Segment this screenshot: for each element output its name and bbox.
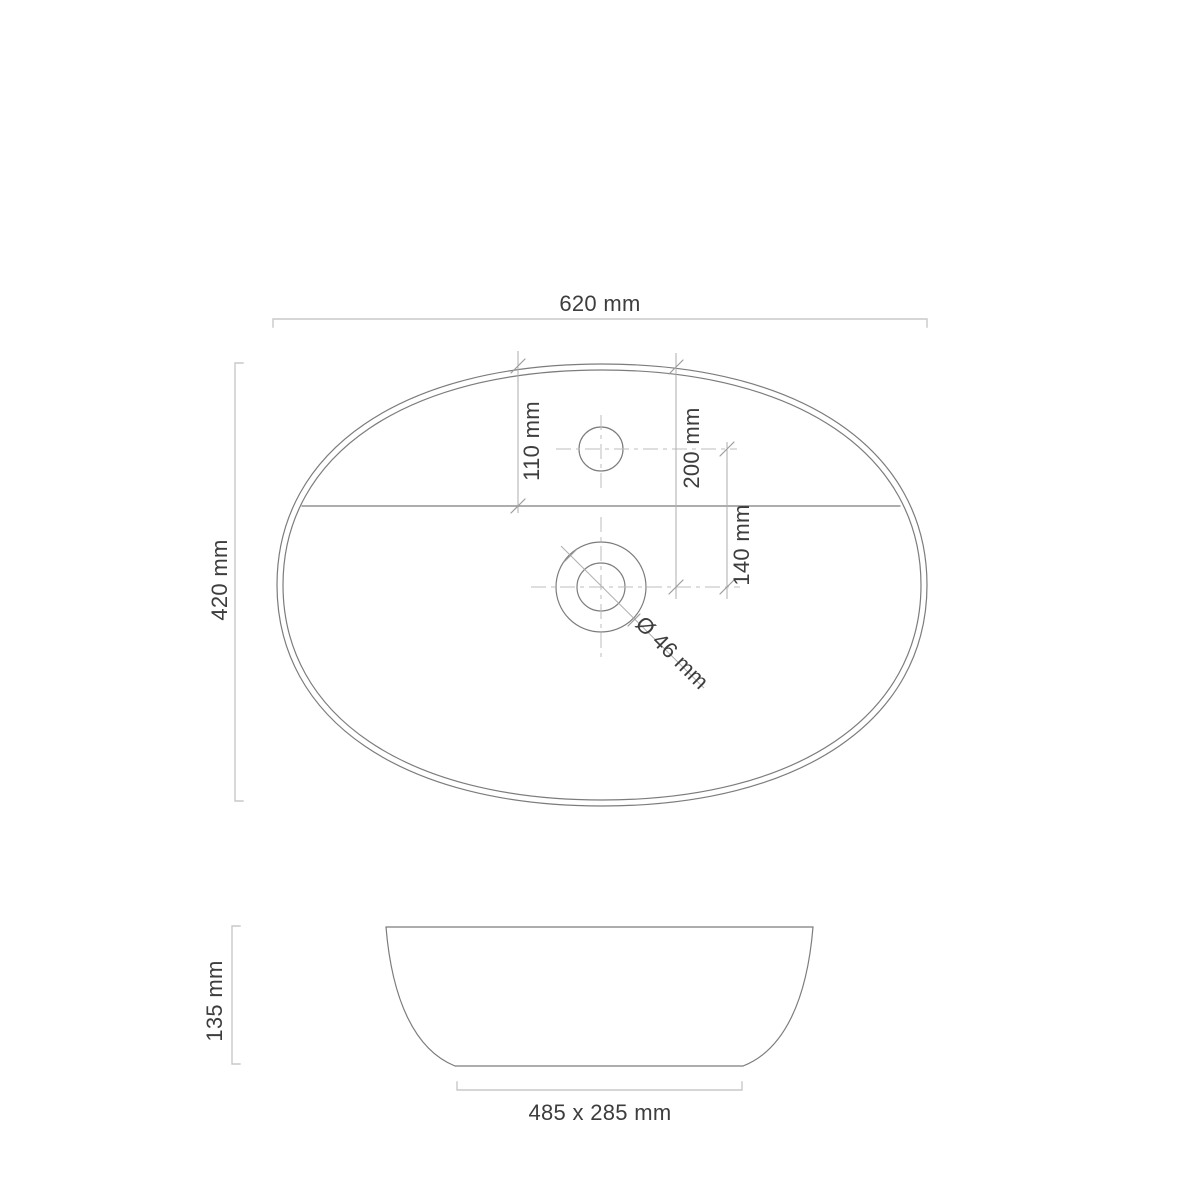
washbasin-technical-drawing: 620 mm 420 mm 110 mm 200 mm 140 mm Ø 46 …: [0, 0, 1200, 1200]
drain-diameter-label: Ø 46 mm: [631, 611, 714, 694]
tick-drain-diameter-upper: [564, 550, 576, 562]
dimension-lines: [518, 351, 727, 688]
drain-offset-label: 200 mm: [679, 407, 704, 488]
basin-height-label: 135 mm: [202, 960, 227, 1041]
width-dimension-label: 620 mm: [559, 291, 640, 316]
technical-drawing-canvas: 620 mm 420 mm 110 mm 200 mm 140 mm Ø 46 …: [0, 0, 1200, 1200]
profile-right-curve: [743, 927, 813, 1066]
profile-left-curve: [386, 927, 455, 1066]
tap-to-drain-distance-label: 140 mm: [729, 504, 754, 585]
basin-outer-rim-outline: [277, 364, 927, 806]
base-dimension-bracket: [457, 1082, 742, 1090]
depth-dimension-bracket: [235, 363, 243, 801]
depth-dimension-label: 420 mm: [207, 539, 232, 620]
height-dimension-bracket: [232, 926, 240, 1064]
dimension-labels: 620 mm 420 mm 110 mm 200 mm 140 mm Ø 46 …: [202, 291, 754, 1125]
centerlines: [531, 415, 740, 657]
basin-inner-rim-outline: [283, 370, 921, 800]
base-size-label: 485 x 285 mm: [528, 1100, 671, 1125]
tap-hole-offset-label: 110 mm: [519, 401, 544, 481]
object-lines: [277, 364, 927, 1066]
width-dimension-bracket: [273, 319, 927, 327]
tick-marks: [511, 359, 734, 626]
dimension-brackets: [232, 319, 927, 1090]
